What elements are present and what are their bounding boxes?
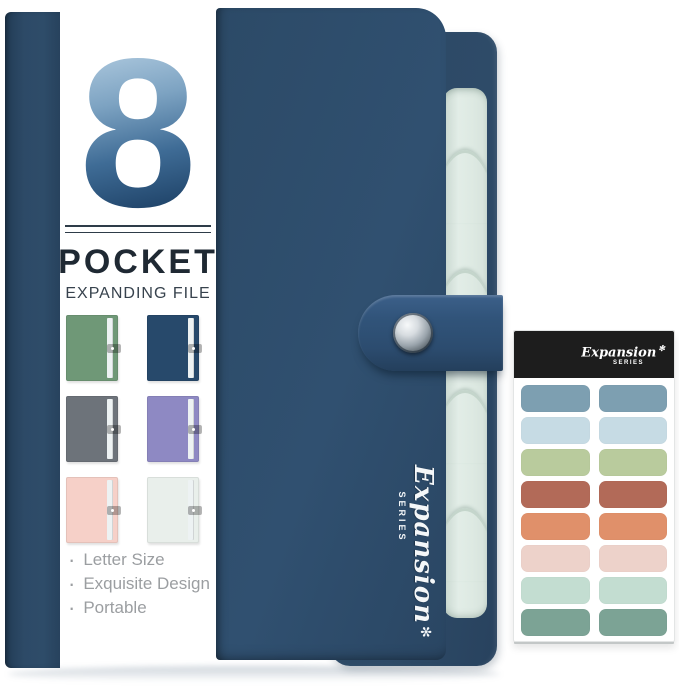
series-script-text: Expansion✻: [581, 343, 665, 360]
drop-shadow: [8, 666, 500, 682]
mini-snap-dot: [192, 428, 195, 431]
series-script-text: Expansion: [408, 465, 438, 624]
feature-text: Portable: [83, 596, 146, 620]
color-swatch-green: [66, 315, 118, 381]
label-sticker: [521, 417, 590, 444]
closure-strap: [358, 295, 503, 371]
label-sticker: [521, 385, 590, 412]
label-sticker: [599, 449, 668, 476]
label-sticker: [521, 449, 590, 476]
pocket-separator: [443, 390, 487, 463]
series-label: SERIES: [613, 360, 644, 366]
label-sticker: [599, 545, 668, 572]
label-sticker: [599, 577, 668, 604]
feature-text: Letter Size: [83, 548, 164, 572]
folder-spine: [5, 12, 60, 668]
star-icon: ✻: [658, 343, 665, 353]
pocket-separator: [443, 508, 487, 581]
bullet-icon: ·: [68, 596, 75, 620]
color-swatch-mint: [147, 477, 199, 543]
label-sticker: [599, 513, 668, 540]
sticker-sheet-header: Expansion✻ SERIES: [514, 331, 674, 378]
mini-strap: [107, 344, 121, 353]
label-sticker: [521, 577, 590, 604]
mini-strap: [188, 425, 202, 434]
feature-item: · Letter Size: [68, 548, 210, 572]
pocket-separator: [443, 150, 487, 223]
label-sticker-sheet: Expansion✻ SERIES: [513, 330, 675, 642]
feature-item: · Exquisite Design: [68, 572, 210, 596]
divider-rule: [65, 225, 211, 233]
star-icon: ✻: [418, 626, 434, 638]
color-swatch-pink: [66, 477, 118, 543]
label-sticker: [521, 481, 590, 508]
color-swatch-gray: [66, 396, 118, 462]
mini-strap: [107, 425, 121, 434]
color-swatch-navy: [147, 315, 199, 381]
series-label: SERIES: [397, 465, 407, 569]
mini-strap: [188, 344, 202, 353]
feature-text: Exquisite Design: [83, 572, 210, 596]
feature-list: · Letter Size · Exquisite Design · Porta…: [68, 548, 210, 620]
mini-snap-dot: [111, 509, 114, 512]
sticker-grid: [514, 378, 674, 643]
mini-strap: [188, 506, 202, 515]
color-swatch-grid: [66, 315, 197, 543]
product-photo: 8 POCKET EXPANDING FILE: [0, 0, 679, 693]
mini-snap-dot: [111, 428, 114, 431]
mini-snap-dot: [192, 509, 195, 512]
bullet-icon: ·: [68, 572, 75, 596]
bullet-icon: ·: [68, 548, 75, 572]
product-title: POCKET: [58, 243, 218, 282]
cover-label: 8 POCKET EXPANDING FILE: [60, 12, 216, 668]
label-sticker: [599, 417, 668, 444]
label-sticker: [599, 481, 668, 508]
snap-button: [393, 313, 433, 353]
series-script-word: Expansion: [581, 345, 656, 360]
label-sticker: [521, 609, 590, 636]
product-subtitle: EXPANDING FILE: [65, 285, 210, 303]
mini-snap-dot: [192, 347, 195, 350]
label-sticker: [599, 385, 668, 412]
series-branding: Expansion✻ SERIES: [378, 465, 438, 615]
color-swatch-purple: [147, 396, 199, 462]
logo-number-8: 8: [79, 50, 197, 216]
mini-snap-dot: [111, 347, 114, 350]
feature-item: · Portable: [68, 596, 210, 620]
mini-strap: [107, 506, 121, 515]
label-sticker: [521, 545, 590, 572]
label-sticker: [599, 609, 668, 636]
label-sticker: [521, 513, 590, 540]
